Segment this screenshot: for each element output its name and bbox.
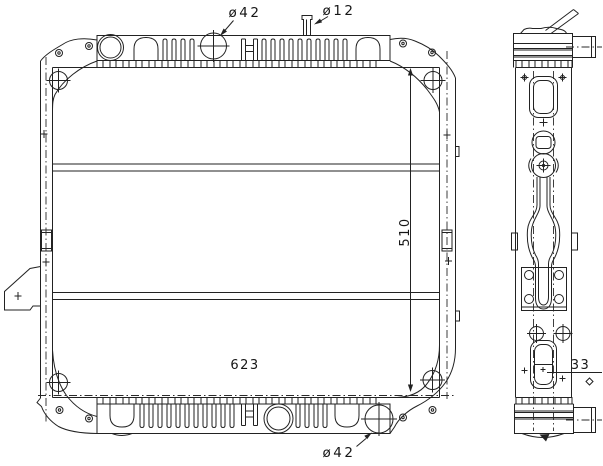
dim-frame-depth: 33 bbox=[547, 358, 602, 373]
dim-core-width: 623 bbox=[230, 358, 259, 373]
front-bottom-ribs bbox=[140, 404, 327, 428]
side-channel-inner bbox=[531, 177, 556, 305]
dim-frame-depth-label: 33 bbox=[571, 358, 591, 373]
side-filler-cap bbox=[521, 27, 567, 33]
dim-overflow-pipe: ø12 bbox=[314, 3, 355, 25]
front-bottom-tank bbox=[97, 398, 397, 437]
dim-core-height: 510 bbox=[398, 68, 413, 392]
side-bottom-tank bbox=[515, 398, 603, 442]
dim-top-filler: ø42 bbox=[220, 5, 261, 36]
side-frame-channel bbox=[512, 68, 594, 432]
dim-bottom-outlet-diameter-label: ø42 bbox=[323, 445, 356, 461]
side-mount-bracket bbox=[522, 268, 567, 311]
front-left-mounting-bracket bbox=[5, 267, 41, 311]
dimension-annotations: ø42 ø12 510 623 ø42 33 bbox=[220, 3, 602, 461]
front-corner-brackets bbox=[37, 38, 456, 433]
front-frame bbox=[41, 61, 456, 398]
front-overflow-pipe bbox=[302, 16, 312, 36]
dim-core-width-label: 623 bbox=[230, 358, 259, 373]
dim-core-height-label: 510 bbox=[398, 217, 413, 246]
front-top-ribs bbox=[163, 39, 347, 61]
dim-top-filler-diameter-label: ø42 bbox=[229, 5, 262, 21]
technical-drawing-page: ø42 ø12 510 623 ø42 33 bbox=[0, 0, 603, 466]
side-top-tank bbox=[514, 10, 603, 68]
dim-bottom-outlet: ø42 bbox=[323, 433, 372, 462]
front-side-tabs bbox=[42, 147, 460, 322]
radiator-drawing: ø42 ø12 510 623 ø42 33 bbox=[0, 0, 603, 466]
side-view bbox=[512, 10, 603, 442]
front-top-filler-hole bbox=[198, 30, 230, 62]
front-top-tank bbox=[97, 16, 390, 68]
